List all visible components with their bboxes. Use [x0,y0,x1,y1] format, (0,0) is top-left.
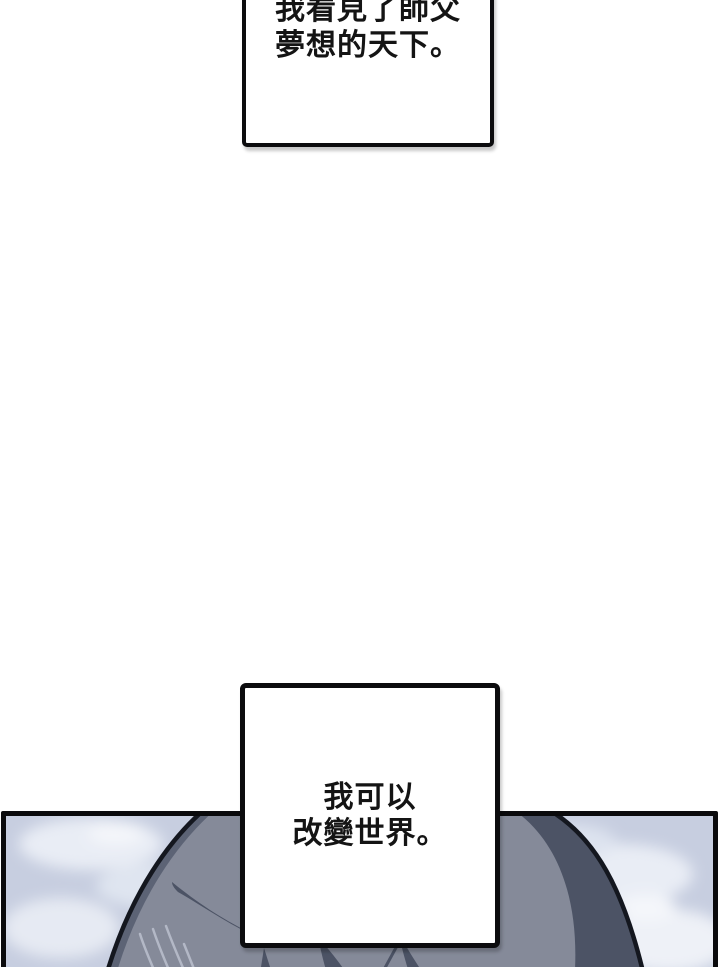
narration-box-bottom: 我可以 改變世界。 [240,683,500,948]
narration-line: 我看見了師父 [246,0,490,28]
cloud [6,898,119,958]
narration-line: 我可以 [245,780,495,816]
cloud [88,823,144,845]
narration-line: 改變世界。 [245,816,495,852]
comic-page: 我看見了師父 夢想的天下。 我可以 改變世界。 [0,0,720,967]
narration-box-top: 我看見了師父 夢想的天下。 [242,0,494,147]
narration-line: 夢想的天下。 [246,28,490,64]
narration-text: 我看見了師父 夢想的天下。 [246,0,490,64]
cloud [19,818,163,870]
narration-text: 我可以 改變世界。 [245,780,495,852]
